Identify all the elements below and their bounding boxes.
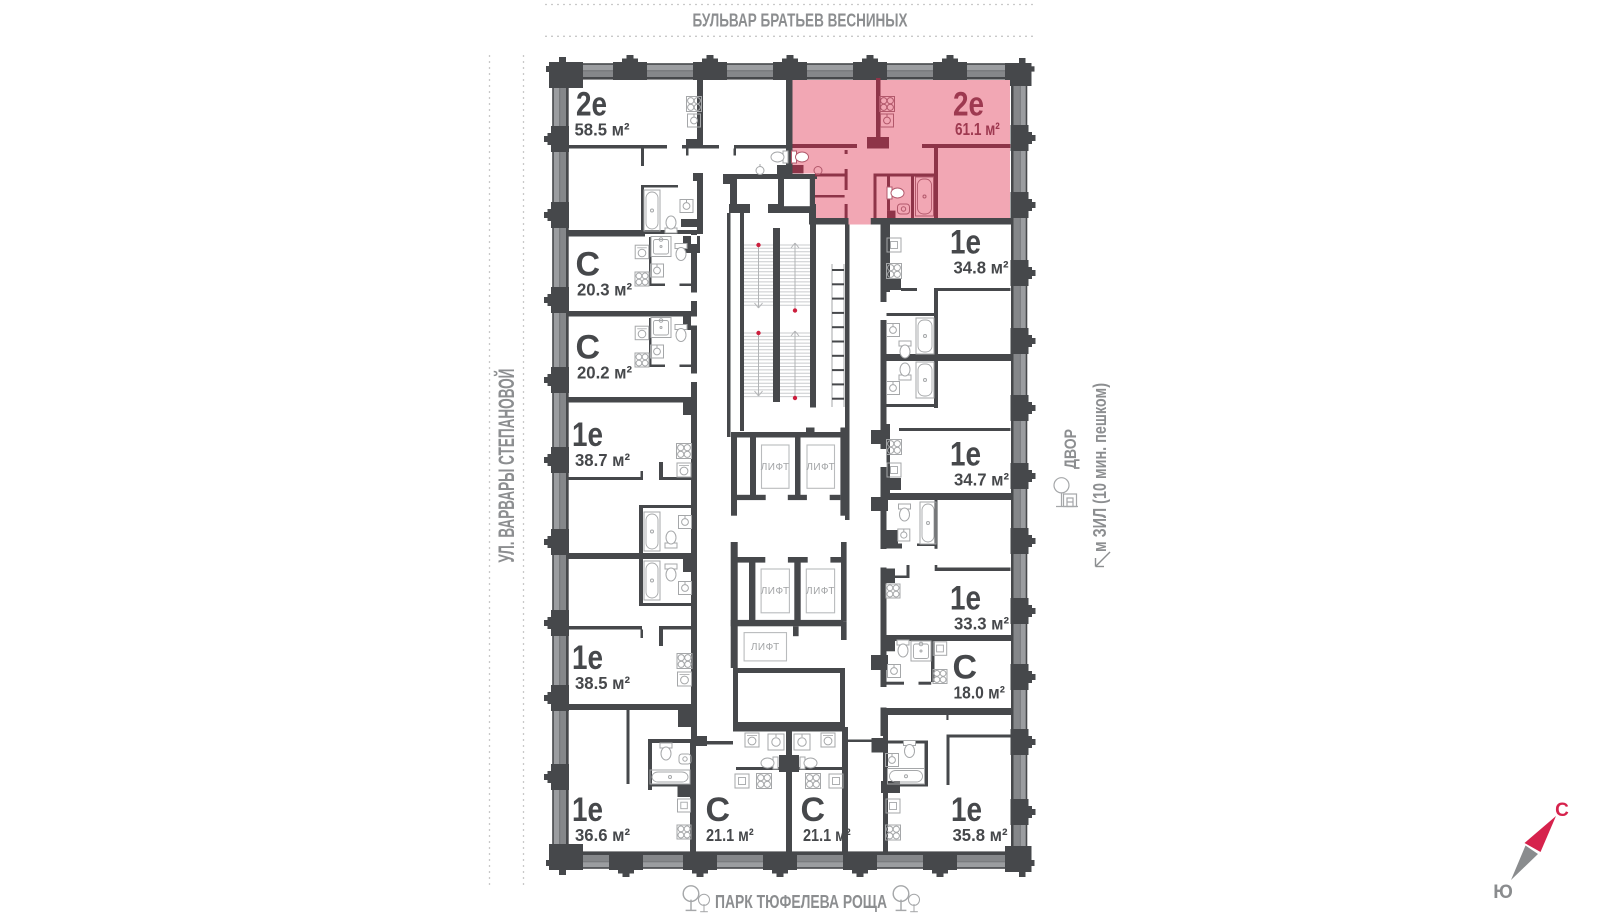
svg-text:35.8 м²: 35.8 м² (953, 825, 1008, 845)
svg-text:1е: 1е (951, 791, 982, 829)
svg-text:ДВОР: ДВОР (1061, 429, 1080, 469)
svg-text:м ЗИЛ (10 мин. пешком): м ЗИЛ (10 мин. пешком) (1090, 383, 1110, 552)
svg-text:20.2 м²: 20.2 м² (577, 362, 632, 382)
svg-text:ЛИФТ: ЛИФТ (761, 462, 790, 473)
svg-text:36.6 м²: 36.6 м² (575, 825, 630, 845)
svg-text:С: С (1555, 800, 1569, 821)
svg-text:1е: 1е (572, 639, 603, 677)
svg-text:С: С (953, 649, 978, 687)
svg-text:С: С (576, 329, 601, 367)
svg-text:1е: 1е (950, 580, 981, 618)
svg-text:34.8 м²: 34.8 м² (954, 257, 1009, 277)
svg-text:18.0 м²: 18.0 м² (954, 682, 1006, 702)
svg-text:61.1 м²: 61.1 м² (955, 119, 1000, 139)
svg-text:1е: 1е (572, 791, 603, 829)
svg-text:С: С (576, 246, 601, 284)
svg-text:34.7 м²: 34.7 м² (954, 469, 1009, 489)
svg-text:УЛ. ВАРВАРЫ СТЕПАНОВОЙ: УЛ. ВАРВАРЫ СТЕПАНОВОЙ (494, 369, 519, 563)
svg-text:ПАРК ТЮФЕЛЕВА РОЩА: ПАРК ТЮФЕЛЕВА РОЩА (715, 892, 887, 912)
svg-text:21.1 м²: 21.1 м² (706, 825, 754, 845)
svg-text:38.7 м²: 38.7 м² (575, 450, 630, 470)
svg-text:38.5 м²: 38.5 м² (575, 673, 630, 693)
svg-text:20.3 м²: 20.3 м² (577, 279, 632, 299)
svg-text:ЛИФТ: ЛИФТ (806, 586, 835, 597)
svg-text:ЛИФТ: ЛИФТ (751, 642, 780, 653)
svg-text:Ю: Ю (1493, 882, 1513, 903)
svg-text:2е: 2е (953, 85, 984, 123)
svg-text:ЛИФТ: ЛИФТ (761, 586, 790, 597)
svg-text:58.5 м²: 58.5 м² (575, 119, 630, 139)
svg-text:1е: 1е (950, 436, 981, 474)
svg-text:БУЛЬВАР БРАТЬЕВ ВЕСНИНЫХ: БУЛЬВАР БРАТЬЕВ ВЕСНИНЫХ (693, 10, 908, 31)
svg-text:С: С (706, 791, 731, 829)
svg-text:2е: 2е (576, 86, 607, 124)
svg-text:ЛИФТ: ЛИФТ (806, 462, 835, 473)
svg-text:1е: 1е (572, 416, 603, 454)
svg-text:21.1 м²: 21.1 м² (803, 825, 851, 845)
svg-text:1е: 1е (950, 224, 981, 262)
svg-text:С: С (801, 791, 826, 829)
svg-text:33.3 м²: 33.3 м² (954, 613, 1009, 633)
